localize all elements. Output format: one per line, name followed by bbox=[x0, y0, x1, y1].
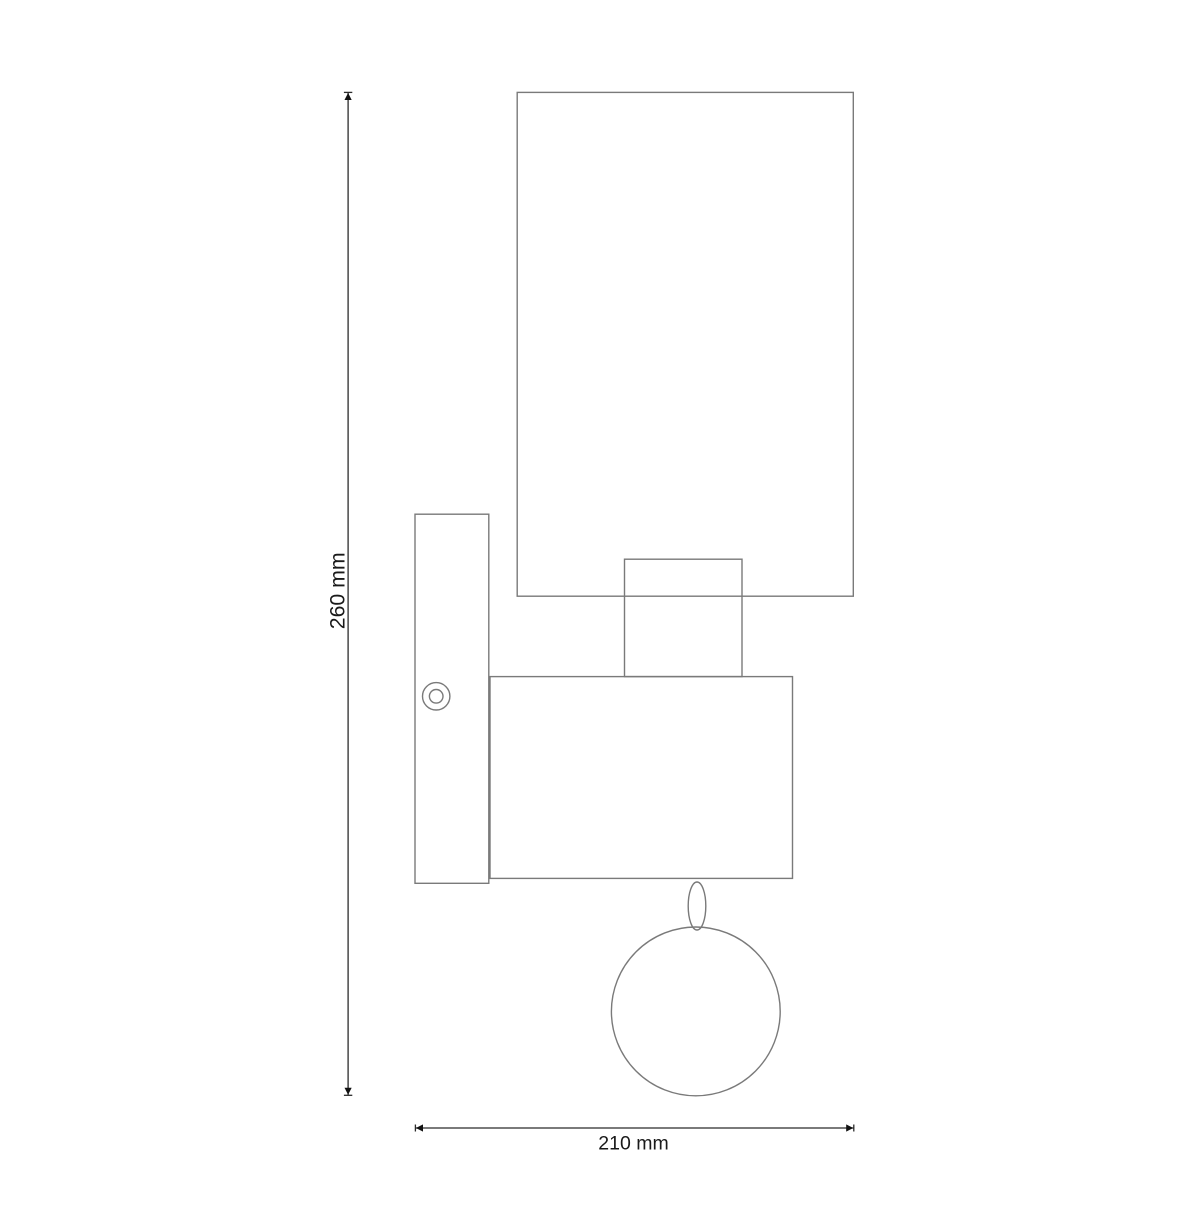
svg-text:260 mm: 260 mm bbox=[325, 552, 349, 629]
svg-text:210 mm: 210 mm bbox=[598, 1133, 668, 1155]
